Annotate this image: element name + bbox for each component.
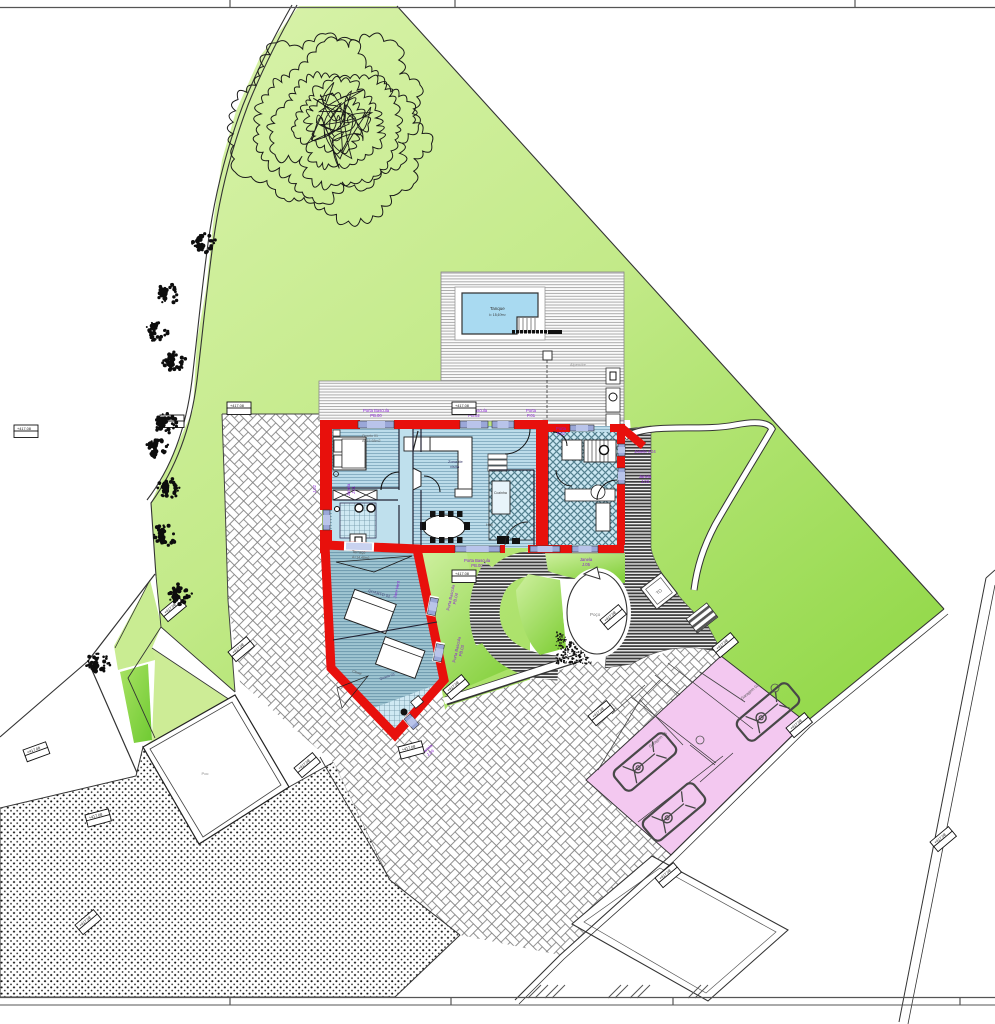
svg-text:i= 15,6?m²: i= 15,6?m² xyxy=(489,313,506,317)
svg-text:Janela J.04: Janela J.04 xyxy=(634,449,656,454)
svg-text:Tanque: Tanque xyxy=(490,306,505,311)
svg-text:A=15.68m2: A=15.68m2 xyxy=(362,439,380,443)
svg-text:Cozinha: Cozinha xyxy=(494,491,507,495)
svg-text:J.03: J.03 xyxy=(641,479,650,484)
svg-text:PB.00: PB.00 xyxy=(471,563,483,568)
svg-text:+417.08: +417.08 xyxy=(17,427,31,431)
svg-text:J.02: J.02 xyxy=(312,484,317,493)
svg-text:J.01: J.01 xyxy=(351,485,356,494)
svg-text:Hall: Hall xyxy=(486,522,493,527)
svg-text:J.05: J.05 xyxy=(582,562,591,567)
svg-text:P.01: P.01 xyxy=(527,413,536,418)
svg-text:Alpendre: Alpendre xyxy=(570,362,587,367)
svg-text:Poço: Poço xyxy=(590,612,601,617)
svg-text:P.02: P.02 xyxy=(557,431,566,436)
svg-text:Poc: Poc xyxy=(202,771,209,776)
svg-text:+417.08: +417.08 xyxy=(230,404,244,408)
svg-text:+417.08: +417.08 xyxy=(455,572,469,576)
svg-text:PB.00: PB.00 xyxy=(370,413,382,418)
svg-text:Terraço: Terraço xyxy=(352,549,366,555)
svg-text:Quarto 01: Quarto 01 xyxy=(362,434,378,438)
svg-text:visita: visita xyxy=(450,464,460,469)
svg-text:+417.08: +417.08 xyxy=(455,404,469,408)
